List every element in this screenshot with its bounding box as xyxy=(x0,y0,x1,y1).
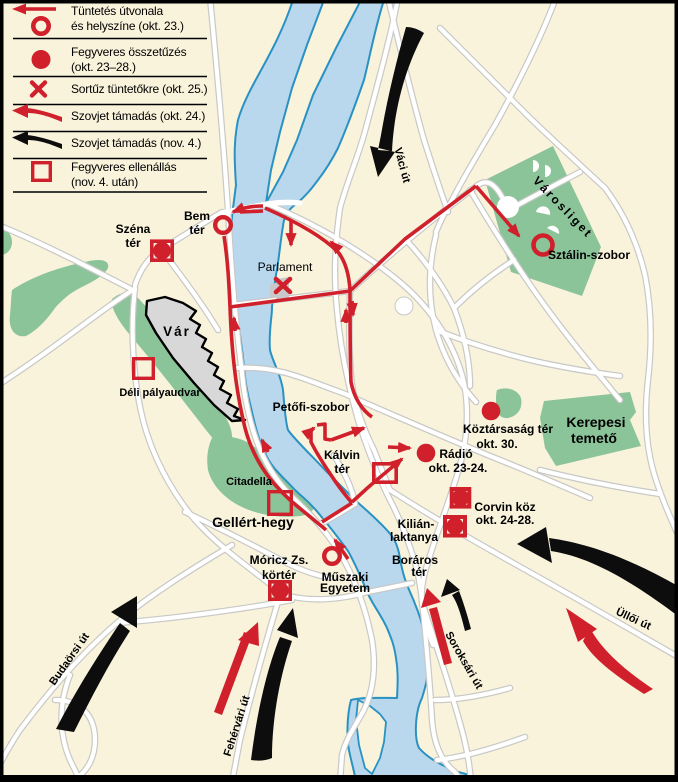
svg-text:és helyszíne (okt. 23.): és helyszíne (okt. 23.) xyxy=(71,19,184,33)
svg-text:Rádió: Rádió xyxy=(439,447,472,461)
svg-text:Petőfi-szobor: Petőfi-szobor xyxy=(273,400,350,414)
svg-text:temető: temető xyxy=(571,430,617,446)
svg-text:Tüntetés útvonala: Tüntetés útvonala xyxy=(71,4,164,18)
svg-text:Fegyveres ellenállás: Fegyveres ellenállás xyxy=(71,160,177,174)
svg-text:Kálvin: Kálvin xyxy=(324,448,360,462)
svg-text:Köztársaság tér: Köztársaság tér xyxy=(463,422,553,436)
svg-text:Kilián-: Kilián- xyxy=(398,517,435,531)
svg-text:Parlament: Parlament xyxy=(258,260,313,274)
svg-text:körtér: körtér xyxy=(262,568,296,582)
svg-text:(okt. 23–28.): (okt. 23–28.) xyxy=(71,60,136,74)
svg-text:Kerepesi: Kerepesi xyxy=(566,414,625,430)
svg-text:Fegyveres összetűzés: Fegyveres összetűzés xyxy=(71,45,187,59)
svg-text:tér: tér xyxy=(334,462,350,476)
svg-text:Déli pályaudvar: Déli pályaudvar xyxy=(119,387,201,399)
svg-text:Bem: Bem xyxy=(184,209,210,223)
svg-text:Egyetem: Egyetem xyxy=(320,581,370,595)
svg-text:okt. 30.: okt. 30. xyxy=(476,437,517,451)
svg-text:tér: tér xyxy=(125,236,141,250)
svg-text:Szovjet támadás (okt. 24.): Szovjet támadás (okt. 24.) xyxy=(71,109,205,123)
svg-text:Széna: Széna xyxy=(116,222,151,236)
svg-text:Szovjet támadás (nov. 4.): Szovjet támadás (nov. 4.) xyxy=(71,136,201,150)
svg-text:Sztálin-szobor: Sztálin-szobor xyxy=(548,248,630,262)
svg-text:tér: tér xyxy=(189,223,205,237)
svg-text:Sortűz tüntetőkre (okt. 25.): Sortűz tüntetőkre (okt. 25.) xyxy=(71,82,208,96)
svg-text:okt. 23-24.: okt. 23-24. xyxy=(429,461,488,475)
svg-text:Corvin köz: Corvin köz xyxy=(474,500,535,514)
svg-text:Gellért-hegy: Gellért-hegy xyxy=(212,514,294,530)
svg-text:laktanya: laktanya xyxy=(390,530,438,544)
svg-text:Citadella: Citadella xyxy=(226,476,273,488)
svg-text:(nov. 4. után): (nov. 4. után) xyxy=(71,175,138,189)
svg-text:Vár: Vár xyxy=(163,324,191,339)
svg-text:tér: tér xyxy=(411,565,427,579)
svg-text:Móricz Zs.: Móricz Zs. xyxy=(250,553,309,567)
svg-text:okt. 24-28.: okt. 24-28. xyxy=(476,513,535,527)
